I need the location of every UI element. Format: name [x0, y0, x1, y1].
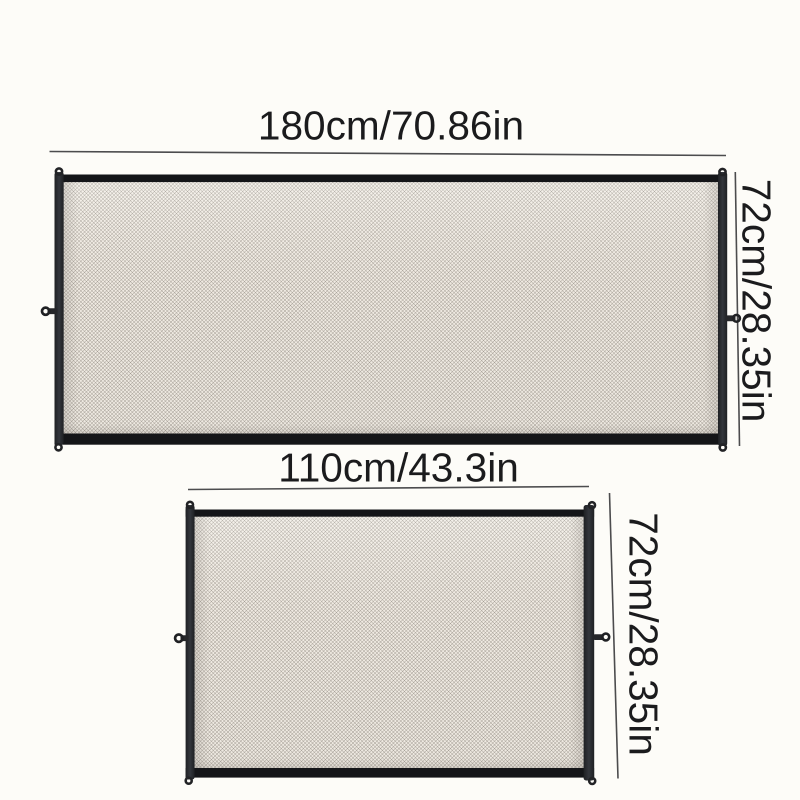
- svg-text:72cm/28.35in: 72cm/28.35in: [733, 179, 779, 423]
- svg-text:72cm/28.35in: 72cm/28.35in: [621, 512, 667, 756]
- svg-text:180cm/70.86in: 180cm/70.86in: [258, 103, 524, 149]
- svg-text:110cm/43.3in: 110cm/43.3in: [278, 445, 519, 491]
